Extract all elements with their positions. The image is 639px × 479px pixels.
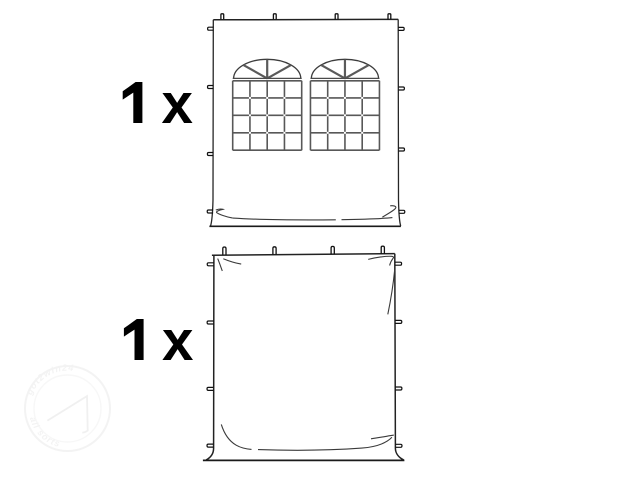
svg-text:x: x [162,309,194,372]
svg-text:x: x [162,72,194,135]
